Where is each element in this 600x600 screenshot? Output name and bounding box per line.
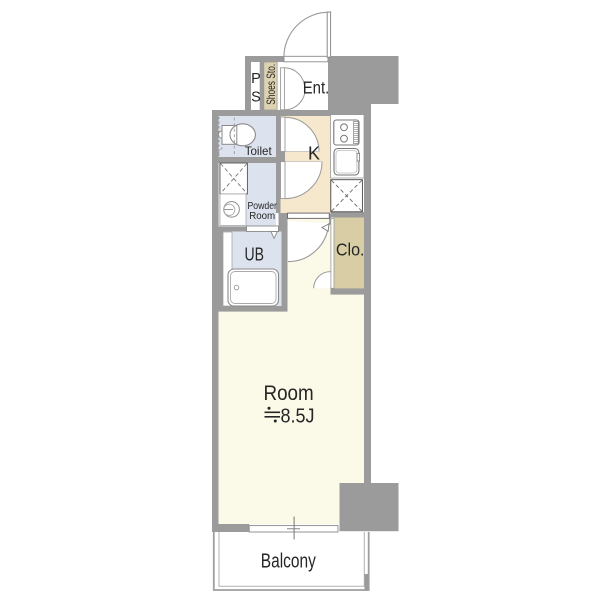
svg-text:UB: UB <box>244 245 264 265</box>
svg-text:P: P <box>251 71 261 87</box>
svg-text:S: S <box>251 90 261 106</box>
svg-text:Shoes Sto.: Shoes Sto. <box>264 64 278 105</box>
svg-text:Room: Room <box>264 381 314 405</box>
svg-text:8.5J: 8.5J <box>281 406 315 428</box>
svg-text:Room: Room <box>249 211 275 222</box>
svg-text:Ent.: Ent. <box>303 78 330 98</box>
svg-text:K: K <box>308 144 320 164</box>
svg-text:Toilet: Toilet <box>245 144 273 158</box>
svg-text:Clo.: Clo. <box>336 240 365 260</box>
svg-text:Balcony: Balcony <box>261 551 316 573</box>
